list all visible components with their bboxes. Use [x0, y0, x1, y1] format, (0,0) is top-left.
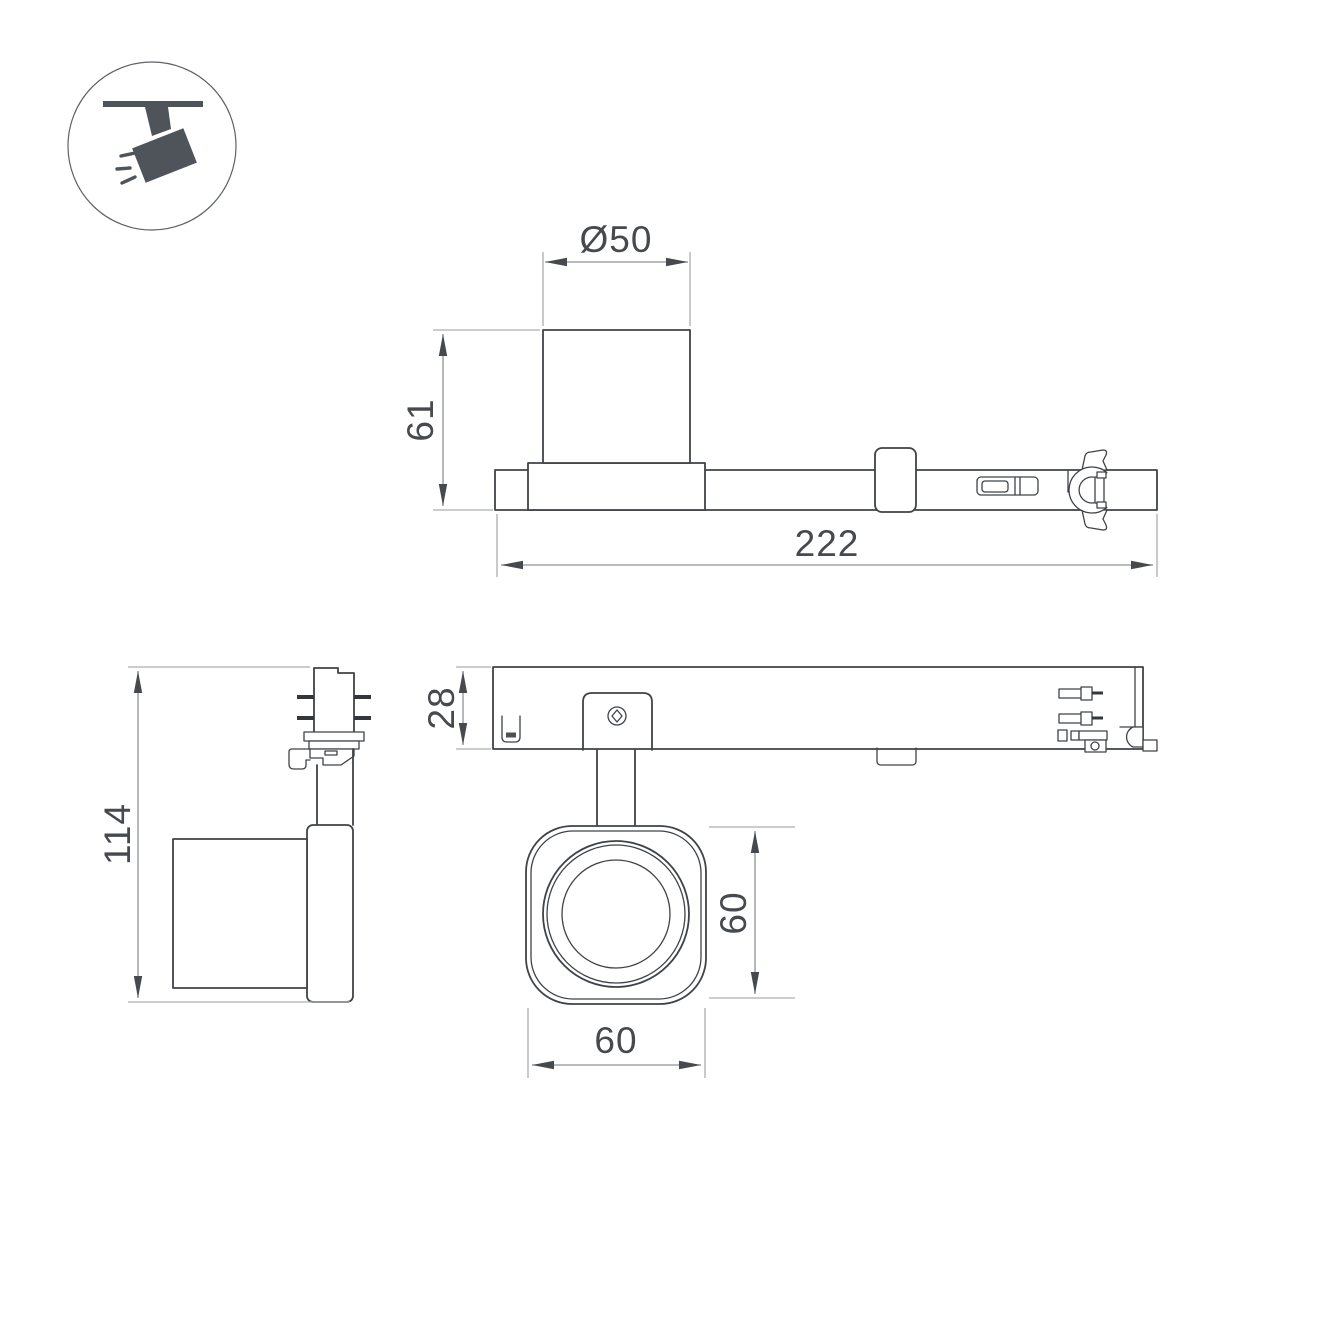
icon-light-ray: [121, 153, 135, 156]
top-view: 28: [421, 667, 1157, 765]
contact-block: [1081, 687, 1092, 700]
mount-clip: [875, 448, 916, 512]
latch-jaw: [1095, 477, 1104, 503]
lamp-cylinder: [543, 330, 690, 463]
small-block: [1058, 730, 1067, 741]
latch-jaw-notch: [1097, 472, 1106, 478]
icon-light-ray: [122, 177, 135, 183]
dimension-label-total-height: 114: [97, 803, 138, 865]
drawing-svg: Ø50 61 222 114: [0, 0, 1331, 1331]
track-spotlight-icon: [68, 62, 236, 230]
contact-block: [1081, 712, 1092, 725]
contact-slider: [1059, 689, 1082, 698]
ground-strip: [1079, 731, 1107, 740]
connector-plate: [309, 741, 359, 749]
latch-knob-top: [1127, 727, 1143, 747]
lamp-head: [173, 839, 307, 988]
locking-hook: [289, 749, 310, 769]
dimension-label-total-length: 222: [795, 523, 860, 564]
head-squircle-outer: [526, 826, 706, 1004]
latch-jaw-notch: [1097, 502, 1106, 508]
bracket-slot: [325, 751, 337, 755]
bottom-tab: [877, 748, 916, 765]
icon-lamp-body: [132, 128, 197, 183]
front-view: 114: [97, 667, 371, 1002]
track-adapter-top: [493, 667, 1143, 749]
icon-light-ray: [117, 168, 130, 169]
technical-drawing-canvas: Ø50 61 222 114: [0, 0, 1331, 1331]
dimension-label-head-width: 60: [594, 1020, 637, 1061]
icon-mount-stem: [145, 107, 171, 136]
corner-tab: [1143, 740, 1157, 751]
latch-pivot-hole: [1091, 742, 1099, 750]
dimension-label-cylinder-height: 61: [400, 398, 441, 441]
lens-view: 60 60: [526, 750, 795, 1078]
connector-flange: [304, 732, 364, 741]
dimension-label-head-height: 60: [713, 891, 754, 934]
icon-ceiling-bar: [103, 101, 203, 107]
slider-knob: [982, 481, 1008, 492]
dimension-label-track-depth: 28: [421, 686, 462, 729]
driver-body: [307, 825, 353, 1002]
side-view: Ø50 61 222: [400, 219, 1157, 577]
contact-slider: [1059, 714, 1082, 723]
lamp-base: [528, 463, 705, 510]
small-block: [1071, 731, 1079, 740]
dimension-label-diameter: Ø50: [580, 219, 653, 260]
